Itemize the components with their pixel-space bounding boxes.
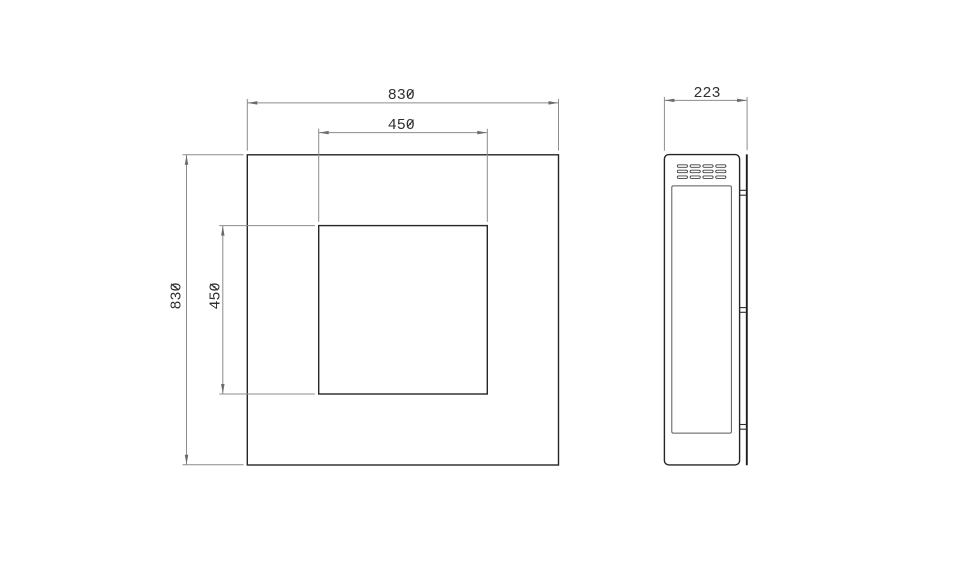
svg-text:450: 450 [388, 117, 415, 134]
svg-text:223: 223 [693, 85, 720, 102]
svg-text:450: 450 [207, 282, 224, 309]
svg-text:830: 830 [168, 282, 185, 309]
svg-text:830: 830 [388, 87, 415, 104]
